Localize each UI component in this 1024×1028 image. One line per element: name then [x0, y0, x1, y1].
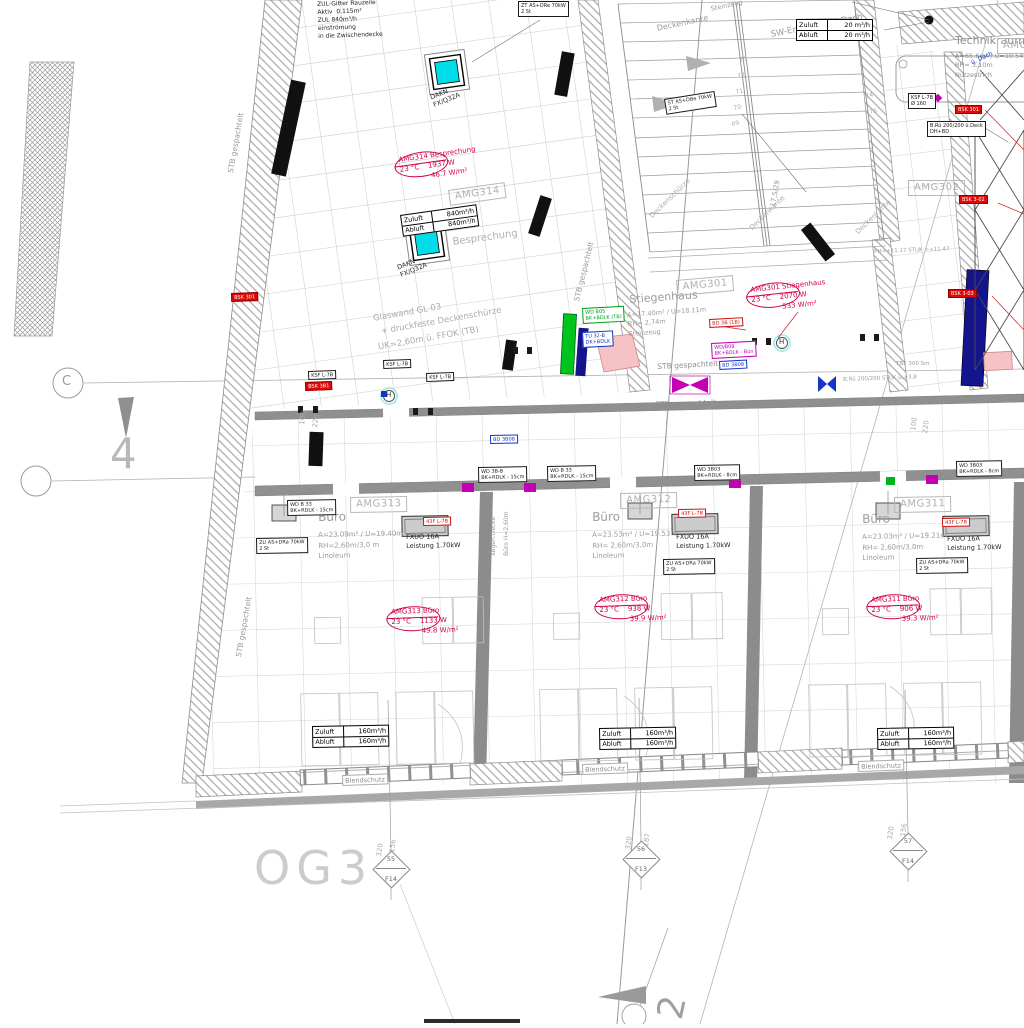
- deckenkante-top: Deckenkante: [656, 13, 709, 34]
- airflow-type: Abluft: [313, 737, 344, 747]
- tag-wd-b05: WD B05 BK+BDLK (TB): [582, 306, 625, 324]
- airflow-buero-1: Zuluft160m³/hAbluft160m³/h: [312, 725, 389, 748]
- window-marker-57-f14: 57F14: [890, 833, 926, 869]
- airflow-value: 160m³/h: [344, 726, 388, 736]
- dim-100-left: 100: [298, 411, 309, 425]
- stb-corridor-1: STB gespachtelt: [657, 359, 718, 372]
- tag-zu-office-2: ZU AS+DRa 70kW 2 St: [663, 558, 715, 574]
- airflow-value: 160m³/h: [631, 738, 675, 748]
- tag-wd-corridor-1: WD 3B-B BK+RDLK - 15cm: [478, 466, 528, 482]
- abgeh-decke: abgeh.Decke: [490, 517, 498, 556]
- airflow-row: Abluft160m³/h: [600, 737, 675, 749]
- dim-220-right: 220: [921, 420, 932, 434]
- stamp-amg312: AMG312 Büro23 °C 938 W39.9 W/m²: [599, 594, 667, 626]
- stamp-amg313: AMG313 Büro23 °C 1133 W49.8 W/m²: [391, 606, 459, 638]
- tag-bruestung: B.Rü 200/200 ü.Deck DH+BD: [927, 121, 986, 137]
- tread-71: 71: [735, 87, 744, 96]
- tread-72: 72: [737, 71, 746, 80]
- airflow-type: Abluft: [600, 739, 631, 749]
- axis-label-2: 2: [648, 992, 697, 1024]
- airflow-buero-2: Zuluft160m³/hAbluft160m³/h: [599, 727, 676, 750]
- tread-73: 73: [739, 55, 748, 64]
- buero-3-title: Büro: [862, 512, 890, 527]
- tag-blendschutz-3: Blendschutz: [858, 759, 904, 772]
- stb-left-top: STB gespachtelt: [226, 112, 246, 174]
- skylight-1-label: DAKN FX/Q32A: [429, 83, 461, 109]
- tag-ksf-3: KSF L-7B: [308, 370, 336, 380]
- bruestung-note: B.Rü 200/200 STUK ü.+3.8: [843, 374, 917, 383]
- tag-bsk-right-3: BSK 3-03: [948, 289, 977, 298]
- steinzeug-top: Steinzeug: [710, 0, 743, 13]
- window-type: F13: [623, 865, 659, 873]
- tag-bd-3b08-2: BD 3B08: [490, 435, 518, 445]
- glaswand-note: Glaswand GL 03 + druckfeste Deckenschürz…: [372, 290, 505, 355]
- tread-75: 75: [869, 107, 878, 116]
- stiegenhaus-info: A=17.40m² / U=18.11m RH= 2,74m Steinzeug: [627, 305, 708, 339]
- buero-2-info: A=23.53m² / U=19.53 m RH= 2,60m/3,0m Lin…: [592, 528, 680, 561]
- buero-2-title: Büro: [592, 510, 620, 525]
- tag-bd-3b-1b: BD 3B (1B): [709, 317, 743, 328]
- airflow-besprechung: Zuluft840m³/hAbluft840m³/h: [400, 204, 479, 237]
- tag-wd-b08: WD/B08 BK+BDLK - Bün: [711, 341, 757, 359]
- airflow-row: Abluft160m³/h: [878, 737, 953, 749]
- annotation-overlay: ZUL-Gitter Rauzeile Aktiv 0.115m² ZUL 84…: [0, 0, 1024, 1024]
- diamond-divider: [893, 850, 923, 851]
- window-number: 56: [623, 845, 659, 853]
- room-code-amg302: AMG302: [908, 180, 965, 196]
- tag-wd-office-1: WD B 33 BK+RDLK - 15cm: [287, 499, 337, 515]
- axis-label-c: C: [62, 374, 71, 390]
- airflow-buero-3: Zuluft160m³/hAbluft160m³/h: [877, 727, 954, 750]
- airflow-type: Zuluft: [600, 728, 631, 738]
- tag-wd-corridor-3: WD 3B03 BK+RDLK - 8cm: [694, 464, 740, 480]
- airflow-type: Zuluft: [878, 728, 909, 738]
- airflow-value: 160m³/h: [909, 728, 953, 738]
- hydrant-1-letter: H: [386, 391, 391, 400]
- tag-zu-office-1: ZU AS+DRa 70kW 2 St: [256, 537, 308, 553]
- window-marker-56-f13: 56F13: [623, 841, 659, 877]
- room-code-amg313: AMG313: [350, 496, 408, 513]
- window-type: F14: [373, 875, 409, 883]
- airflow-row: Zuluft160m³/h: [313, 726, 388, 737]
- ph-note: PH=+11.17 STUK =+11.47: [874, 246, 950, 256]
- tag-ksf-top: KSF L-7B Ø 160: [908, 93, 936, 109]
- radiator-2-label: FXUO 16A Leistung 1.70kW: [676, 532, 731, 551]
- deckenschuerze-diag: Deckenschürze: [648, 177, 692, 220]
- tag-zu-office-3: ZU AS+DRa 70kW 2 St: [916, 557, 968, 573]
- tag-top-diffuser: ZT AS+DRe 70kW 2 St: [518, 1, 569, 17]
- room-code-amg314: AMG314: [448, 182, 507, 206]
- tread-69: 69: [731, 119, 740, 128]
- airflow-value: 20 m³/h: [828, 31, 872, 41]
- floor-code: OG3: [254, 840, 373, 898]
- radiator-1-label: FXUO 16A Leistung 1.70kW: [406, 532, 461, 551]
- deckenkante-diag-1: Deckenkante: [748, 194, 787, 232]
- tb2-note: TB2 300 Sm: [896, 361, 929, 368]
- room-code-amg312: AMG312: [620, 492, 678, 509]
- tag-valve-2: 43F L-7B: [678, 509, 706, 519]
- airflow-type: Abluft: [878, 739, 909, 749]
- airflow-technikraum: Zuluft20 m³/hAbluft20 m³/h: [796, 19, 873, 41]
- room-code-amg30: AMG30: [997, 38, 1024, 54]
- tag-blendschutz-2: Blendschutz: [582, 762, 628, 775]
- airflow-value: 20 m³/h: [828, 20, 872, 30]
- stb-corridor-2: STB gespachtelt: [655, 398, 716, 409]
- tag-hall-diffuser: ST AS+DBe 70kW 2 St: [664, 91, 717, 114]
- diamond-divider: [376, 868, 406, 869]
- tag-valve-3: 43F L-7B: [942, 518, 970, 528]
- airflow-row: Zuluft20 m³/h: [797, 20, 872, 30]
- tag-bsk-left-2: BSK 3B1: [305, 381, 332, 391]
- tag-wd-corridor-2: WD B 33 BK+RDLK - 15cm: [547, 465, 597, 481]
- window-number: 55: [373, 855, 409, 863]
- tag-bsk-left-1: BSK 301: [231, 292, 258, 302]
- airflow-type: Zuluft: [797, 20, 828, 30]
- buero-hoehe: Büro H=2,60m: [503, 511, 511, 556]
- airflow-row: Abluft20 m³/h: [797, 30, 872, 41]
- tag-bsk-right-1: BSK 301: [955, 105, 982, 114]
- stb-left-bottom: STB gespachtelt: [234, 596, 254, 658]
- airflow-value: 160m³/h: [631, 728, 675, 738]
- hydrant-2-letter: H: [779, 338, 784, 347]
- dim-100-right: 100: [909, 417, 920, 431]
- room-code-amg301: AMG301: [676, 275, 734, 296]
- diamond-divider: [626, 858, 656, 859]
- tag-tu-32b: TU 32-B DK+BDLK: [582, 330, 613, 347]
- window-number: 57: [890, 837, 926, 845]
- besprechung-title: Besprechung: [452, 228, 519, 249]
- stb-stair: STB gespachtelt: [572, 241, 596, 302]
- window-marker-55-f14: 55F14: [373, 851, 409, 887]
- airflow-row: Zuluft160m³/h: [878, 728, 953, 739]
- radiator-3-label: FXUO 16A Leistung 1.70kW: [947, 534, 1002, 553]
- room-code-amg311: AMG311: [894, 496, 952, 513]
- skylight-2-label: DAKN FX/Q32A: [396, 253, 428, 279]
- dim-220-left: 220: [311, 414, 322, 428]
- window-type: F14: [890, 857, 926, 865]
- tag-bd-3b08-1: BD 3B08: [719, 360, 747, 371]
- stamp-amg311: AMG311 Büro23 °C 906 W39.3 W/m²: [871, 594, 939, 626]
- tag-ksf-1: KSF L-7B: [383, 359, 411, 369]
- tag-valve-1: 43F L-7B: [423, 517, 451, 527]
- tag-wd-office-3: WD 3B03 BK+RDLK - 8cm: [956, 460, 1002, 476]
- airflow-row: Zuluft160m³/h: [600, 728, 675, 739]
- airflow-type: Zuluft: [313, 726, 344, 736]
- airflow-type: Abluft: [797, 31, 828, 41]
- note-zuluft-gitter: ZUL-Gitter Rauzeile Aktiv 0.115m² ZUL 84…: [317, 0, 383, 41]
- airflow-value: 160m³/h: [344, 736, 388, 746]
- airflow-row: Abluft160m³/h: [313, 735, 388, 747]
- airflow-value: 160m³/h: [909, 738, 953, 748]
- stamp-amg301: AMG301 Stiegenhaus23 °C 2070 W533 W/m²: [750, 278, 828, 315]
- tag-blendschutz-1: Blendschutz: [342, 773, 388, 786]
- tag-ksf-2: KSF L-7B: [426, 372, 454, 382]
- stamp-amg314: AMG314 Besprechung23 °C 1937 W46.7 W/m²: [398, 145, 479, 185]
- deckenkante-diag-2: Deckenkante: [854, 198, 893, 236]
- tread-74: 74: [865, 91, 874, 100]
- tread-70: 70: [733, 103, 742, 112]
- buero-1-info: A=23.09m² / U=19.40m RH=2,60m/3,0 m Lino…: [318, 529, 404, 562]
- axis-label-4: 4: [110, 428, 137, 481]
- tag-bsk-right-2: BSK 3-02: [959, 195, 988, 204]
